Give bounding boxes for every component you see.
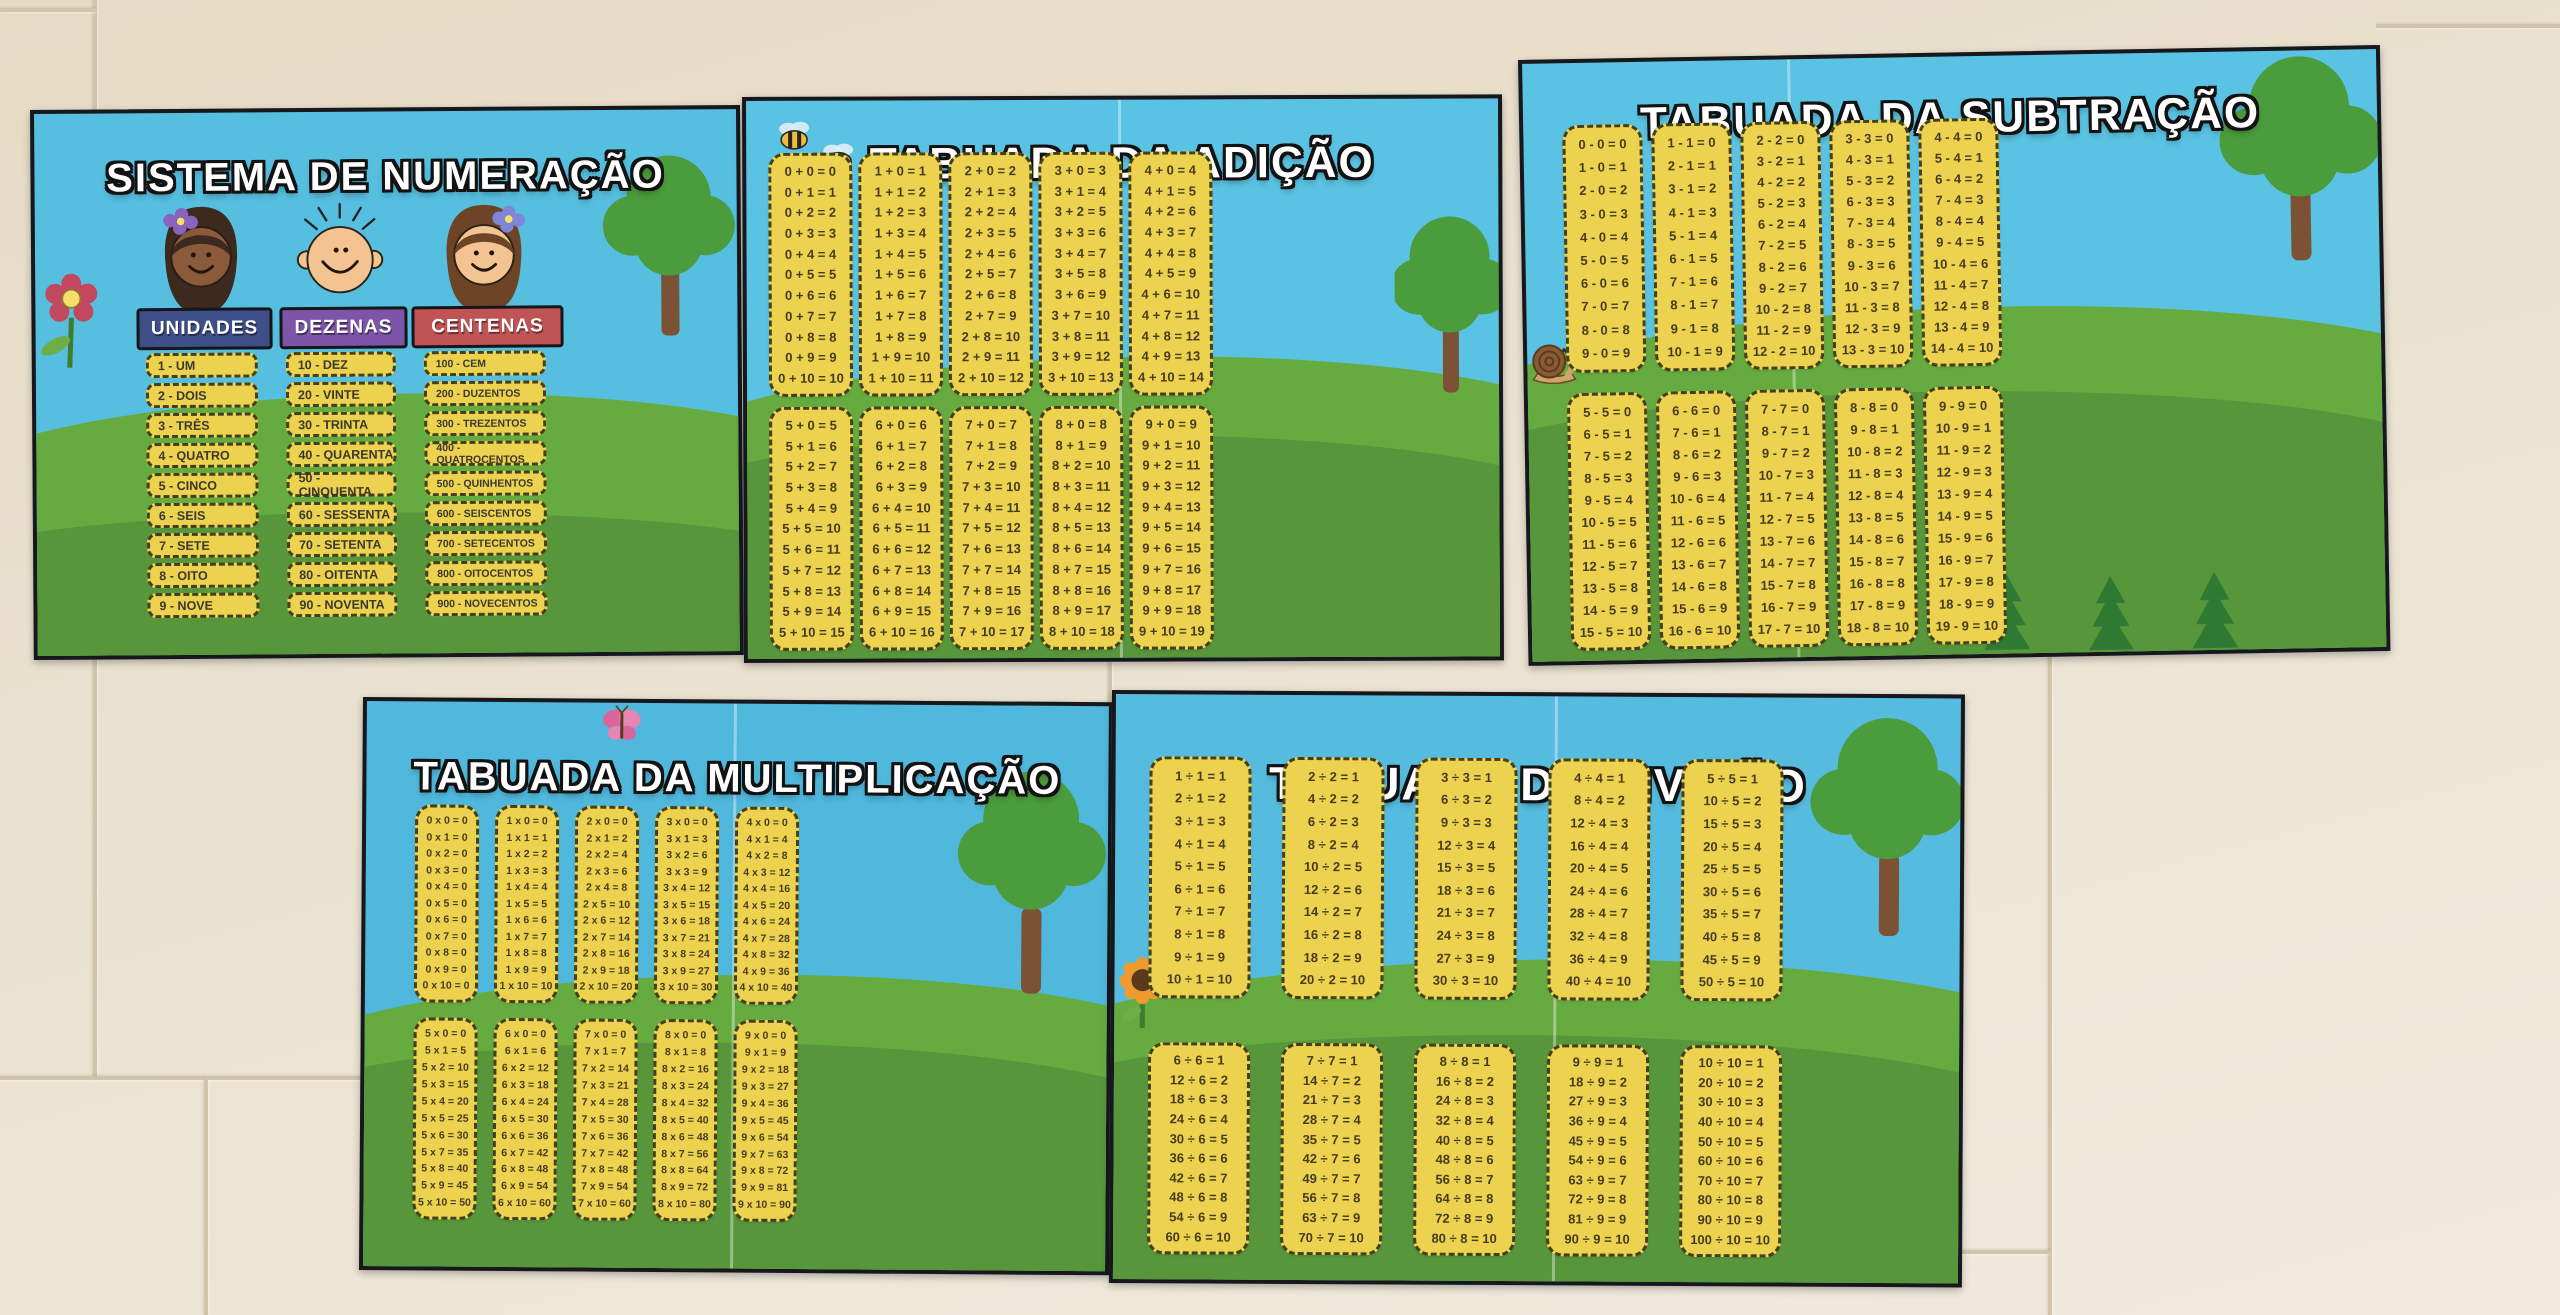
- equation-column: 0 - 0 = 01 - 0 = 12 - 0 = 23 - 0 = 34 - …: [1562, 124, 1646, 373]
- equation: 81 ÷ 9 = 9: [1568, 1212, 1626, 1225]
- poster-tabuada-divisao: TABUADA DA DIVISÃO 1 ÷ 1 = 12 ÷ 1 = 23 ÷…: [1109, 690, 1965, 1287]
- equation: 7 x 10 = 60: [578, 1199, 631, 1210]
- equation: 28 ÷ 4 = 7: [1570, 907, 1628, 920]
- equation-column: 8 + 0 = 88 + 1 = 98 + 2 = 108 + 3 = 118 …: [1039, 406, 1124, 650]
- equation: 2 ÷ 2 = 1: [1308, 770, 1359, 783]
- equation: 30 ÷ 5 = 6: [1703, 885, 1761, 898]
- equation: 7 x 1 = 7: [585, 1047, 626, 1058]
- equation: 9 x 9 = 81: [741, 1183, 788, 1194]
- equation: 14 - 9 = 5: [1937, 508, 1993, 522]
- equation: 3 - 2 = 1: [1757, 154, 1805, 168]
- equation: 13 - 9 = 4: [1937, 486, 1993, 500]
- number-word-item: 9 - NOVE: [147, 592, 259, 618]
- equation: 8 + 4 = 12: [1052, 500, 1111, 513]
- equation-column: 8 - 8 = 09 - 8 = 110 - 8 = 211 - 8 = 312…: [1834, 387, 1918, 646]
- equation: 3 x 1 = 3: [666, 834, 707, 845]
- equation: 4 ÷ 1 = 4: [1175, 837, 1226, 850]
- equation: 2 - 1 = 1: [1668, 159, 1716, 173]
- equation: 14 - 5 = 9: [1583, 602, 1639, 616]
- equation: 24 ÷ 4 = 6: [1570, 884, 1628, 897]
- equation: 4 + 4 = 8: [1145, 246, 1196, 259]
- equation: 4 + 5 = 9: [1145, 267, 1196, 280]
- equation: 9 + 2 = 11: [1142, 459, 1200, 472]
- equation: 9 x 0 = 0: [745, 1031, 786, 1042]
- equation: 7 x 3 = 21: [582, 1080, 629, 1091]
- equation-column: 9 x 0 = 09 x 1 = 99 x 2 = 189 x 3 = 279 …: [732, 1020, 797, 1222]
- equation: 90 ÷ 9 = 10: [1564, 1232, 1629, 1245]
- tile-grout-horizontal: [1956, 1250, 2050, 1254]
- equation: 6 x 6 = 36: [501, 1131, 548, 1142]
- equation: 0 x 9 = 0: [425, 964, 466, 975]
- equation: 1 + 9 = 10: [872, 351, 931, 364]
- equation: 10 ÷ 2 = 5: [1304, 860, 1362, 873]
- girl2-face-icon: [436, 197, 533, 314]
- equation: 8 x 7 = 56: [661, 1149, 708, 1160]
- equation: 5 + 2 = 7: [786, 460, 837, 473]
- equation: 9 - 1 = 8: [1671, 321, 1719, 335]
- equation: 0 x 6 = 0: [426, 915, 467, 926]
- equation: 1 + 7 = 8: [875, 309, 926, 322]
- equation: 3 + 2 = 5: [1055, 205, 1106, 218]
- equation: 5 + 0 = 5: [785, 419, 836, 432]
- equation: 8 x 4 = 32: [662, 1098, 709, 1109]
- equation: 1 x 3 = 3: [506, 866, 547, 877]
- equation: 16 ÷ 8 = 2: [1436, 1075, 1494, 1088]
- equation: 7 + 1 = 8: [966, 439, 1017, 452]
- equation: 2 + 7 = 9: [965, 309, 1016, 322]
- equation: 7 + 0 = 7: [965, 418, 1016, 431]
- equation: 2 + 4 = 6: [965, 247, 1016, 260]
- equation-column: 4 - 4 = 05 - 4 = 16 - 4 = 27 - 4 = 38 - …: [1918, 118, 2002, 367]
- equation: 4 x 4 = 16: [743, 884, 790, 895]
- fir-tree-icon: [2191, 570, 2238, 651]
- equation: 14 - 8 = 6: [1849, 532, 1905, 546]
- equation: 2 + 5 = 7: [965, 267, 1016, 280]
- equation: 3 + 1 = 4: [1055, 184, 1106, 197]
- number-word-item: 60 - SESSENTA: [287, 501, 397, 527]
- equation: 0 + 7 = 7: [785, 310, 836, 323]
- equation: 17 - 8 = 9: [1850, 598, 1906, 612]
- equation: 6 - 0 = 6: [1581, 276, 1629, 290]
- equation: 7 - 0 = 7: [1581, 300, 1629, 314]
- equation: 35 ÷ 7 = 5: [1303, 1133, 1361, 1146]
- equation: 54 ÷ 6 = 9: [1169, 1210, 1227, 1223]
- equation: 32 ÷ 4 = 8: [1570, 929, 1628, 942]
- equation: 45 ÷ 9 = 5: [1569, 1134, 1627, 1147]
- tree-icon: [1394, 198, 1504, 398]
- equation: 9 + 0 = 9: [1145, 417, 1196, 430]
- equation: 3 + 5 = 8: [1055, 267, 1106, 280]
- number-word-item: 2 - DOIS: [146, 382, 258, 408]
- equation-column: 4 ÷ 4 = 18 ÷ 4 = 212 ÷ 4 = 316 ÷ 4 = 420…: [1547, 758, 1650, 1001]
- equation: 9 + 10 = 19: [1139, 624, 1205, 637]
- equation-column: 5 + 0 = 55 + 1 = 65 + 2 = 75 + 3 = 85 + …: [769, 407, 854, 651]
- equation: 5 x 5 = 25: [422, 1113, 469, 1124]
- equation: 7 ÷ 7 = 1: [1307, 1054, 1358, 1067]
- equation: 2 x 0 = 0: [587, 817, 628, 828]
- equation: 12 ÷ 4 = 3: [1570, 816, 1628, 829]
- equation: 8 x 1 = 8: [665, 1047, 706, 1058]
- equation-column: 9 - 9 = 010 - 9 = 111 - 9 = 212 - 9 = 31…: [1923, 386, 2007, 645]
- equation-column: 5 ÷ 5 = 110 ÷ 5 = 215 ÷ 5 = 320 ÷ 5 = 42…: [1680, 759, 1783, 1002]
- equation: 4 x 3 = 12: [743, 867, 790, 878]
- equation: 4 + 9 = 13: [1142, 350, 1201, 363]
- equation: 15 - 8 = 7: [1849, 554, 1905, 568]
- equation: 7 + 7 = 14: [962, 563, 1021, 576]
- equation: 3 x 9 = 27: [663, 966, 710, 977]
- equation-column: 1 ÷ 1 = 12 ÷ 1 = 23 ÷ 1 = 34 ÷ 1 = 45 ÷ …: [1148, 756, 1251, 999]
- equation: 1 x 6 = 6: [506, 915, 547, 926]
- equation: 4 x 0 = 0: [746, 818, 787, 829]
- poster-tabuada-multiplicacao: TABUADA DA MULTIPLICAÇÃO 0 x 0 = 00 x 1 …: [359, 697, 1113, 1275]
- equation: 1 + 3 = 4: [875, 226, 926, 239]
- equation: 7 - 5 = 2: [1584, 449, 1632, 463]
- equation-column: 7 ÷ 7 = 114 ÷ 7 = 221 ÷ 7 = 328 ÷ 7 = 43…: [1280, 1043, 1383, 1256]
- equation: 27 ÷ 9 = 3: [1569, 1095, 1627, 1108]
- equation: 11 - 9 = 2: [1936, 442, 1991, 456]
- equation: 3 + 0 = 3: [1055, 164, 1106, 177]
- equation-column: 5 x 0 = 05 x 1 = 55 x 2 = 105 x 3 = 155 …: [412, 1017, 477, 1219]
- poster-tabuada-subtracao: TABUADA DA SUBTRAÇÃO: [1518, 45, 2390, 666]
- equation: 14 - 4 = 10: [1931, 341, 1994, 355]
- equation: 9 ÷ 1 = 9: [1174, 950, 1225, 963]
- equation: 12 - 5 = 7: [1582, 558, 1638, 572]
- equation-column: 2 ÷ 2 = 14 ÷ 2 = 26 ÷ 2 = 38 ÷ 2 = 410 ÷…: [1281, 757, 1384, 1000]
- equation: 48 ÷ 6 = 8: [1169, 1191, 1227, 1204]
- equation: 4 ÷ 2 = 2: [1308, 792, 1359, 805]
- equation: 3 x 3 = 9: [666, 867, 707, 878]
- tree-icon: [1807, 704, 1965, 941]
- equation: 6 + 9 = 15: [872, 605, 931, 618]
- equation: 1 - 1 = 0: [1667, 136, 1715, 150]
- equation: 7 + 9 = 16: [962, 604, 1021, 617]
- equation: 4 + 0 = 4: [1145, 163, 1196, 176]
- equation: 8 - 1 = 7: [1670, 298, 1718, 312]
- equation: 2 + 6 = 8: [965, 288, 1016, 301]
- equation: 21 ÷ 3 = 7: [1437, 906, 1495, 919]
- equation: 9 - 6 = 3: [1673, 469, 1721, 483]
- equation: 3 + 8 = 11: [1052, 329, 1110, 342]
- equation: 8 x 6 = 48: [661, 1132, 708, 1143]
- equation: 18 ÷ 9 = 2: [1569, 1075, 1627, 1088]
- equation: 3 + 9 = 12: [1052, 350, 1111, 363]
- equation: 2 x 8 = 16: [583, 949, 630, 960]
- equation: 9 + 8 = 17: [1142, 583, 1201, 596]
- equation: 9 ÷ 3 = 3: [1441, 816, 1492, 829]
- equation: 5 + 1 = 6: [786, 439, 837, 452]
- equation: 0 + 9 = 9: [785, 351, 836, 364]
- equation: 0 + 3 = 3: [785, 227, 836, 240]
- equation-column: 1 x 0 = 01 x 1 = 11 x 2 = 21 x 3 = 31 x …: [494, 805, 559, 1003]
- poster-title: TABUADA DA MULTIPLICAÇÃO: [366, 754, 1108, 804]
- equation: 8 x 8 = 64: [661, 1166, 708, 1177]
- equation: 6 x 8 = 48: [501, 1164, 548, 1175]
- equation: 1 + 5 = 6: [875, 268, 926, 281]
- equation: 40 ÷ 5 = 8: [1703, 930, 1761, 943]
- equation: 9 - 0 = 9: [1582, 346, 1630, 360]
- equation: 0 + 0 = 0: [785, 165, 836, 178]
- equation: 12 ÷ 2 = 6: [1304, 883, 1362, 896]
- equation: 14 ÷ 7 = 2: [1303, 1074, 1361, 1087]
- equation: 35 ÷ 5 = 7: [1703, 907, 1761, 920]
- equation: 7 - 7 = 0: [1761, 401, 1809, 415]
- equation: 6 + 6 = 12: [872, 543, 931, 556]
- equation: 6 x 5 = 30: [502, 1114, 549, 1125]
- equation: 1 + 0 = 1: [875, 164, 926, 177]
- equation: 1 + 4 = 5: [875, 247, 926, 260]
- girl-face-icon: [153, 198, 250, 315]
- equation: 6 + 0 = 6: [875, 418, 926, 431]
- equation: 8 ÷ 4 = 2: [1574, 794, 1625, 807]
- equation: 8 + 5 = 13: [1052, 521, 1111, 534]
- equation: 6 x 7 = 42: [501, 1148, 548, 1159]
- equation: 11 - 7 = 4: [1759, 489, 1814, 503]
- equation: 16 - 6 = 10: [1669, 623, 1732, 637]
- equation: 5 + 3 = 8: [786, 481, 837, 494]
- equation: 4 ÷ 4 = 1: [1574, 771, 1625, 784]
- equation: 3 - 1 = 2: [1668, 182, 1716, 196]
- equation: 6 - 6 = 0: [1672, 403, 1720, 417]
- equation: 56 ÷ 8 = 7: [1435, 1173, 1493, 1186]
- equation: 5 - 1 = 4: [1669, 228, 1717, 242]
- equation: 4 - 4 = 0: [1934, 130, 1982, 144]
- equation-column: 6 - 6 = 07 - 6 = 18 - 6 = 29 - 6 = 310 -…: [1656, 390, 1740, 649]
- equation: 11 - 5 = 6: [1582, 537, 1637, 551]
- equation: 18 ÷ 3 = 6: [1437, 883, 1495, 896]
- equation-column: 9 ÷ 9 = 118 ÷ 9 = 227 ÷ 9 = 336 ÷ 9 = 44…: [1546, 1044, 1649, 1257]
- equation: 4 + 2 = 6: [1145, 205, 1196, 218]
- equation: 0 x 1 = 0: [426, 832, 467, 843]
- equation: 15 ÷ 5 = 3: [1703, 817, 1761, 830]
- equation: 2 x 10 = 20: [580, 982, 633, 993]
- equation-column: 5 - 5 = 06 - 5 = 17 - 5 = 28 - 5 = 39 - …: [1567, 392, 1651, 651]
- equation: 13 - 6 = 7: [1671, 557, 1727, 571]
- equation: 4 + 6 = 10: [1141, 288, 1200, 301]
- equation: 5 x 8 = 40: [421, 1164, 468, 1175]
- equation: 8 x 10 = 80: [658, 1199, 711, 1210]
- tile-grout-vertical: [2048, 650, 2052, 1315]
- equation: 8 - 2 = 6: [1759, 259, 1807, 273]
- equation: 36 ÷ 6 = 6: [1169, 1152, 1227, 1165]
- equation: 5 x 10 = 50: [418, 1198, 471, 1209]
- equation: 7 - 3 = 4: [1847, 216, 1895, 230]
- equation: 1 x 4 = 4: [506, 882, 547, 893]
- equation: 63 ÷ 9 = 7: [1568, 1173, 1626, 1186]
- equation-column: 0 + 0 = 00 + 1 = 10 + 2 = 20 + 3 = 30 + …: [768, 153, 853, 397]
- equation: 4 x 7 = 28: [743, 933, 790, 944]
- equation: 12 - 9 = 3: [1936, 464, 1992, 478]
- equation: 0 x 3 = 0: [426, 865, 467, 876]
- equation: 0 x 7 = 0: [426, 931, 467, 942]
- equation: 32 ÷ 8 = 4: [1436, 1114, 1494, 1127]
- equation: 9 + 7 = 16: [1142, 562, 1201, 575]
- equation: 1 x 0 = 0: [507, 816, 548, 827]
- equation: 13 - 3 = 10: [1842, 342, 1905, 356]
- equation: 6 - 4 = 2: [1935, 172, 1983, 186]
- equation: 7 + 5 = 12: [962, 521, 1021, 534]
- equation: 7 + 8 = 15: [962, 584, 1021, 597]
- equation: 4 + 7 = 11: [1142, 308, 1200, 321]
- equation: 7 x 8 = 48: [581, 1165, 628, 1176]
- equation: 2 ÷ 1 = 2: [1175, 792, 1226, 805]
- equation: 25 ÷ 5 = 5: [1703, 862, 1761, 875]
- equation: 10 - 2 = 8: [1756, 302, 1812, 316]
- equation: 9 + 6 = 15: [1142, 542, 1201, 555]
- equation: 40 ÷ 8 = 5: [1436, 1133, 1494, 1146]
- equation: 2 + 3 = 5: [965, 226, 1016, 239]
- equation: 56 ÷ 7 = 8: [1302, 1191, 1360, 1204]
- equation: 5 x 2 = 10: [422, 1062, 469, 1073]
- equation: 60 ÷ 6 = 10: [1165, 1230, 1230, 1243]
- equation: 3 ÷ 3 = 1: [1441, 771, 1492, 784]
- equation-column: 1 + 0 = 11 + 1 = 21 + 2 = 31 + 3 = 41 + …: [858, 152, 943, 396]
- equation: 0 + 4 = 4: [785, 247, 836, 260]
- equation: 5 + 6 = 11: [783, 543, 841, 556]
- equation: 2 - 0 = 2: [1579, 184, 1627, 198]
- equation: 0 + 10 = 10: [778, 372, 844, 385]
- equation: 6 x 10 = 60: [498, 1198, 551, 1209]
- equation: 2 + 2 = 4: [965, 205, 1016, 218]
- equation: 0 x 4 = 0: [426, 882, 467, 893]
- equation: 5 x 6 = 30: [421, 1130, 468, 1141]
- equation-column: 3 + 0 = 33 + 1 = 43 + 2 = 53 + 3 = 63 + …: [1038, 152, 1123, 396]
- number-word-item: 800 - OITOCENTOS: [425, 560, 547, 586]
- equation: 7 - 4 = 3: [1935, 193, 1983, 207]
- equation-column: 2 + 0 = 22 + 1 = 32 + 2 = 42 + 3 = 52 + …: [948, 152, 1033, 396]
- number-word-item: 300 - TREZENTOS: [424, 410, 546, 436]
- group-label-centenas: CENTENAS: [411, 305, 563, 348]
- tile-grout-horizontal: [2376, 24, 2560, 28]
- equation: 20 ÷ 10 = 2: [1698, 1076, 1763, 1089]
- equation: 6 - 3 = 3: [1846, 195, 1894, 209]
- number-word-item: 100 - CEM: [424, 350, 546, 376]
- equation: 24 ÷ 8 = 3: [1436, 1094, 1494, 1107]
- equation: 0 x 10 = 0: [422, 981, 469, 992]
- equation: 63 ÷ 7 = 9: [1302, 1211, 1360, 1224]
- equation: 2 + 1 = 3: [965, 185, 1016, 198]
- equation: 42 ÷ 6 = 7: [1169, 1171, 1227, 1184]
- equation: 13 - 4 = 9: [1934, 320, 1990, 334]
- equation: 9 x 10 = 90: [738, 1200, 791, 1211]
- equation: 36 ÷ 9 = 4: [1569, 1114, 1627, 1127]
- equation: 70 ÷ 7 = 10: [1298, 1231, 1363, 1244]
- equation: 7 - 2 = 5: [1758, 238, 1806, 252]
- equation-column: 6 x 0 = 06 x 1 = 66 x 2 = 126 x 3 = 186 …: [492, 1018, 557, 1220]
- equation: 8 x 9 = 72: [661, 1182, 708, 1193]
- equation: 10 - 3 = 7: [1844, 279, 1900, 293]
- equation: 17 - 7 = 10: [1758, 621, 1821, 635]
- equation: 8 + 1 = 9: [1056, 438, 1107, 451]
- equation: 16 - 9 = 7: [1938, 552, 1994, 566]
- number-word-item: 600 - SEISCENTOS: [425, 500, 547, 526]
- equation: 6 + 3 = 9: [876, 480, 927, 493]
- number-word-item: 90 - NOVENTA: [287, 591, 397, 617]
- equation: 15 - 9 = 6: [1938, 530, 1994, 544]
- equation: 6 x 2 = 12: [502, 1063, 549, 1074]
- equation: 8 x 2 = 16: [662, 1064, 709, 1075]
- equation-column: 8 ÷ 8 = 116 ÷ 8 = 224 ÷ 8 = 332 ÷ 8 = 44…: [1413, 1044, 1516, 1257]
- equation: 9 x 8 = 72: [741, 1166, 788, 1177]
- equation: 15 - 5 = 10: [1580, 624, 1643, 638]
- equation: 13 - 7 = 6: [1760, 533, 1816, 547]
- equation: 5 + 8 = 13: [782, 584, 841, 597]
- number-word-item: 10 - DEZ: [286, 351, 396, 377]
- equation: 1 + 10 = 11: [868, 371, 933, 384]
- equation: 3 + 4 = 7: [1055, 246, 1106, 259]
- equation: 7 + 10 = 17: [959, 625, 1025, 638]
- equation: 80 ÷ 8 = 10: [1431, 1231, 1496, 1244]
- equation: 17 - 9 = 8: [1938, 574, 1994, 588]
- equation-column: 3 ÷ 3 = 16 ÷ 3 = 29 ÷ 3 = 312 ÷ 3 = 415 …: [1414, 758, 1517, 1001]
- equation: 11 - 6 = 5: [1671, 513, 1726, 527]
- equation: 4 x 9 = 36: [743, 966, 790, 977]
- equation: 30 ÷ 3 = 10: [1433, 974, 1498, 987]
- equation: 12 - 8 = 4: [1848, 488, 1904, 502]
- equation: 10 ÷ 10 = 1: [1698, 1056, 1763, 1069]
- equation: 12 - 3 = 9: [1845, 321, 1901, 335]
- equation: 1 x 7 = 7: [506, 932, 547, 943]
- equation: 6 x 1 = 6: [505, 1046, 546, 1057]
- equation: 3 - 0 = 3: [1580, 207, 1628, 221]
- equation: 8 - 6 = 2: [1673, 447, 1721, 461]
- equation: 10 - 4 = 6: [1933, 256, 1989, 270]
- equation: 6 - 2 = 4: [1758, 217, 1806, 231]
- equation: 6 x 9 = 54: [501, 1181, 548, 1192]
- equation: 9 x 4 = 36: [742, 1098, 789, 1109]
- equation-column: 9 + 0 = 99 + 1 = 109 + 2 = 119 + 3 = 129…: [1129, 405, 1214, 649]
- equation: 1 x 9 = 9: [505, 965, 546, 976]
- equation: 5 ÷ 5 = 1: [1707, 772, 1758, 785]
- equation: 16 ÷ 2 = 8: [1304, 928, 1362, 941]
- boy-face-icon: [292, 198, 389, 315]
- equation: 15 - 7 = 8: [1760, 577, 1816, 591]
- equation-column: 2 - 2 = 03 - 2 = 14 - 2 = 25 - 2 = 36 - …: [1740, 121, 1824, 370]
- equation: 2 x 9 = 18: [583, 965, 630, 976]
- equation: 4 x 5 = 20: [743, 900, 790, 911]
- equation: 72 ÷ 9 = 8: [1568, 1193, 1626, 1206]
- number-word-item: 1 - UM: [146, 352, 258, 378]
- equation: 5 - 0 = 5: [1580, 253, 1628, 267]
- equation: 9 - 9 = 0: [1939, 398, 1987, 412]
- equation: 8 + 7 = 15: [1052, 563, 1111, 576]
- equation: 9 + 4 = 13: [1142, 500, 1201, 513]
- equation: 18 ÷ 6 = 3: [1170, 1093, 1228, 1106]
- equation: 3 + 7 = 10: [1051, 309, 1110, 322]
- equation: 3 x 4 = 12: [663, 883, 710, 894]
- equation-column: 6 + 0 = 66 + 1 = 76 + 2 = 86 + 3 = 96 + …: [859, 406, 944, 650]
- equation: 18 ÷ 2 = 9: [1304, 951, 1362, 964]
- equation: 3 x 8 = 24: [663, 949, 710, 960]
- equation: 7 x 0 = 0: [585, 1030, 626, 1041]
- equation: 6 x 0 = 0: [505, 1029, 546, 1040]
- poster-sistema-numeracao: SISTEMA DE NUMERAÇÃO: [30, 105, 744, 660]
- equation: 0 x 8 = 0: [426, 948, 467, 959]
- equation: 9 x 5 = 45: [742, 1115, 789, 1126]
- equation: 9 x 6 = 54: [741, 1132, 788, 1143]
- equation: 4 x 1 = 4: [746, 834, 787, 845]
- number-word-item: 20 - VINTE: [286, 381, 396, 407]
- equation: 20 ÷ 2 = 10: [1300, 973, 1365, 986]
- equation: 0 x 0 = 0: [427, 815, 468, 826]
- tree-icon: [2210, 45, 2384, 266]
- number-word-item: 7 - SETE: [147, 532, 259, 558]
- equation: 4 + 1 = 5: [1145, 184, 1196, 197]
- equation: 0 + 8 = 8: [785, 330, 836, 343]
- equation: 7 + 6 = 13: [962, 542, 1021, 555]
- equation: 6 + 5 = 11: [873, 522, 931, 535]
- equation: 6 ÷ 3 = 2: [1441, 793, 1492, 806]
- equation: 10 - 9 = 1: [1936, 420, 1992, 434]
